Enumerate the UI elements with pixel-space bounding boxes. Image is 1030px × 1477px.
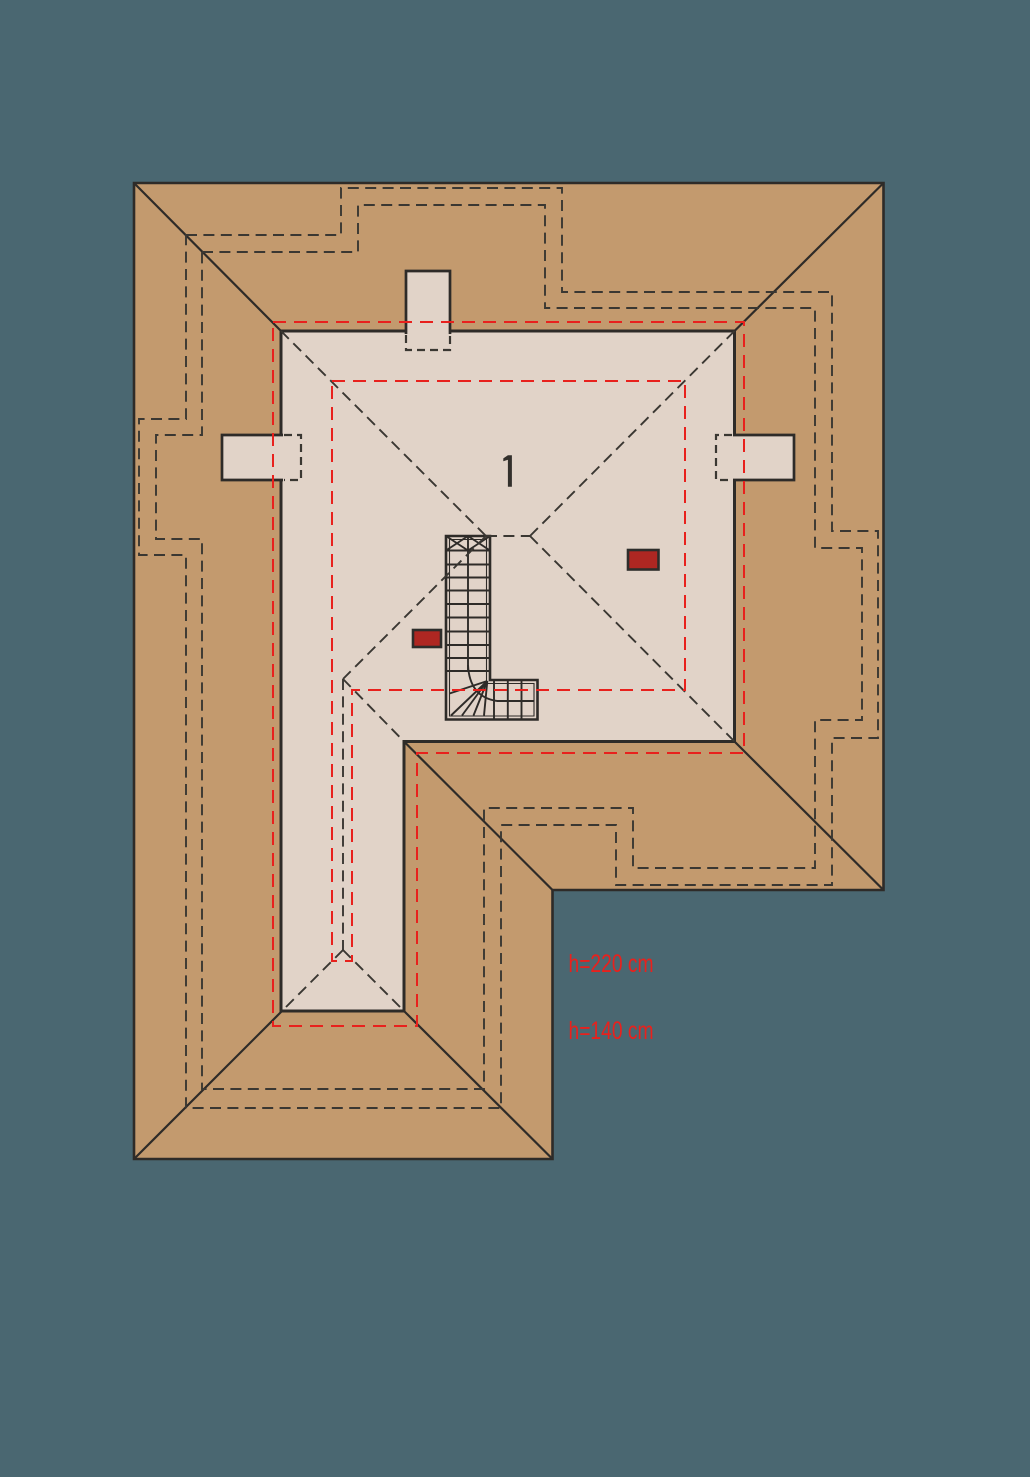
svg-text:h=220 cm: h=220 cm	[569, 950, 654, 978]
svg-text:h=140 cm: h=140 cm	[569, 1017, 654, 1045]
